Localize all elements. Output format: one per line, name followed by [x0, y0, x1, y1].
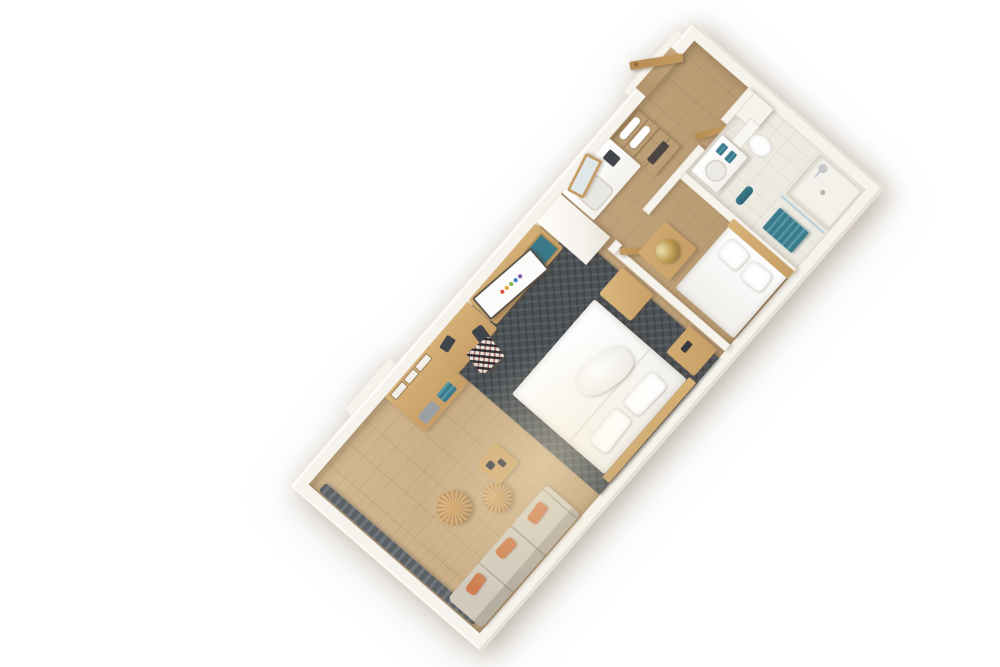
teal-towel — [724, 150, 737, 164]
bed-pillow — [739, 259, 774, 293]
orange-pillow — [464, 572, 486, 597]
storage-tray — [647, 141, 670, 166]
tv-logo-dot — [512, 277, 518, 283]
framed-art — [403, 368, 419, 385]
floorplan-stage — [0, 0, 1000, 667]
tv-logo-dot — [517, 273, 523, 279]
table-decor — [497, 458, 507, 468]
framed-art — [390, 381, 408, 400]
tv-logo-dot — [499, 289, 505, 295]
table-decor — [485, 460, 496, 471]
coffee-maker — [602, 149, 620, 167]
laptop — [439, 335, 456, 353]
suite-unit — [290, 22, 885, 652]
teal-towel-roll — [734, 185, 755, 207]
side-table — [476, 443, 519, 486]
wood-floor — [309, 41, 866, 634]
door-knob — [634, 62, 639, 67]
shower-drain — [819, 189, 826, 196]
shower — [785, 153, 863, 231]
nightstand-item — [680, 340, 693, 353]
outer-walls — [290, 22, 885, 652]
framed-art — [414, 353, 432, 372]
table-lamp — [651, 234, 684, 267]
wicker-pouf-large — [429, 483, 479, 533]
tv-logo-dot — [503, 285, 509, 291]
tv-logo-dot — [508, 281, 514, 287]
orange-pillow — [494, 536, 518, 560]
orange-pillow — [526, 501, 549, 526]
